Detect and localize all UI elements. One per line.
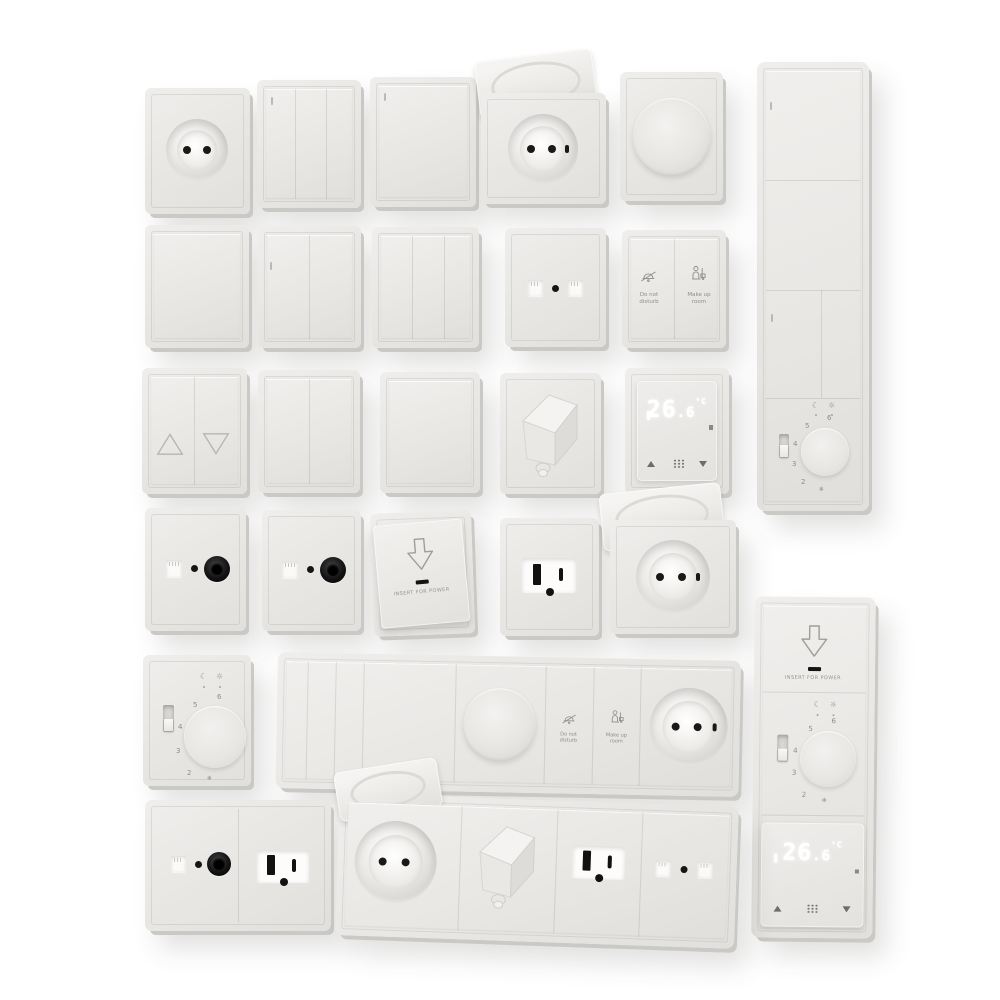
us-outlet <box>522 558 576 592</box>
card-slot <box>808 667 821 671</box>
temp-integer: 26 <box>782 839 812 865</box>
us-outlet <box>572 845 625 879</box>
center-hole <box>552 285 559 292</box>
keycard-slot-face: INSERT FOR POWER <box>373 518 471 628</box>
us-ground-hole <box>280 878 288 886</box>
temperature-display: 26.6°C <box>637 397 717 423</box>
insert-for-power-label: INSERT FOR POWER <box>393 587 449 598</box>
data-jack <box>528 280 543 296</box>
dial-number-4: 4 <box>793 440 797 448</box>
card-slot <box>416 579 429 584</box>
rocker-face <box>154 234 240 339</box>
euro-socket <box>166 119 228 181</box>
temp-decimal: .6 <box>812 848 831 864</box>
socket-pin-hole <box>678 573 686 581</box>
temp-unit: °C <box>695 397 707 406</box>
keycard-power-holder: INSERT FOR POWER <box>370 510 475 636</box>
switch-2-gang <box>258 226 361 348</box>
dial-number-5: 5 <box>193 701 197 709</box>
data-jack <box>655 860 671 877</box>
tv-coax-connector <box>207 852 231 876</box>
rocker-divider <box>444 236 445 339</box>
blank-switch <box>380 372 480 493</box>
media-jack <box>171 856 186 872</box>
moon-icon: ☾ <box>812 402 819 410</box>
temp-up-button <box>774 906 782 912</box>
mode-dots <box>817 714 819 716</box>
make-up-room-icon <box>608 708 626 726</box>
socket-pin-hole <box>183 146 191 154</box>
digital-thermostat-plate: 26.6°C <box>625 368 729 494</box>
indicator-mark <box>384 93 386 101</box>
digital-thermostat: 26.6°C <box>637 381 717 481</box>
rotary-dimmer <box>620 72 723 201</box>
temp-down-button <box>699 461 707 467</box>
module-seam <box>766 290 860 291</box>
temp-down-button <box>842 907 850 913</box>
temp-integer: 26 <box>647 397 677 423</box>
rocker-face <box>381 236 470 339</box>
label-line: Make up <box>678 292 720 299</box>
tv-coax-connector <box>320 557 346 583</box>
sun-icon: ☼ <box>830 701 837 709</box>
socket-pin-hole <box>527 145 535 153</box>
dial-number-4: 4 <box>793 747 798 755</box>
toggle-switch <box>779 434 789 458</box>
indicator-mark <box>770 102 772 110</box>
indicator-mark <box>771 314 773 322</box>
blinds-switch <box>142 368 247 494</box>
center-hole <box>195 861 202 868</box>
toggle-switch <box>777 735 788 762</box>
temp-decimal: .6 <box>677 405 696 421</box>
dimmer-knob <box>633 98 710 175</box>
euro-socket <box>636 540 710 614</box>
led-indicators <box>855 869 859 874</box>
us-slot-neutral <box>267 855 275 875</box>
tv-socket-plate <box>262 510 361 631</box>
socket-well <box>368 834 424 890</box>
rocker-face <box>379 86 467 198</box>
insert-arrow-icon <box>402 535 439 576</box>
do-not-disturb-icon <box>638 266 658 286</box>
thermostat-dial <box>184 706 246 768</box>
dial-number-3: 3 <box>176 747 180 755</box>
rocker-face <box>389 381 471 484</box>
thermostat-dial <box>801 428 849 476</box>
data-socket-plate <box>505 228 606 347</box>
thermostat-dial <box>800 731 857 788</box>
label-line: disturb <box>548 737 588 744</box>
tv-socket-plate <box>145 508 246 631</box>
socket-shutter-slot <box>713 723 717 731</box>
sun-icon: ☼ <box>216 673 223 681</box>
horizontal-socket-panel <box>335 793 739 949</box>
dial-number-6: 6 <box>831 717 836 725</box>
switch-1-gang <box>370 77 476 207</box>
rocker-divider <box>326 89 327 199</box>
socket-pin-hole <box>548 145 556 153</box>
make-up-room-label: Make up room <box>678 292 720 306</box>
mode-dots <box>815 414 817 416</box>
euro-socket <box>508 114 578 184</box>
socket-shutter-slot <box>696 573 700 581</box>
indicator-mark <box>270 262 272 270</box>
label-line: room <box>596 738 636 745</box>
rocker-face <box>266 89 352 199</box>
rocker-divider <box>821 290 822 398</box>
do-not-disturb-label: Do not disturb <box>548 731 588 744</box>
module-seam <box>766 180 860 181</box>
us-slot-live <box>292 859 296 872</box>
dial-number-5: 5 <box>805 422 809 430</box>
module-seam <box>238 809 239 922</box>
make-up-room-label: Make up room <box>596 732 636 745</box>
us-outlet-plate <box>500 518 599 636</box>
moon-icon: ☾ <box>200 673 207 681</box>
dial-number-3: 3 <box>792 460 796 468</box>
dial-number-4: 4 <box>178 723 182 731</box>
rocker-divider <box>309 235 310 339</box>
analog-thermostat: ☾ ☼ 6 5 4 3 2 ❄ <box>143 655 251 786</box>
temp-up-button <box>647 461 655 467</box>
frost-icon: ❄ <box>819 486 824 493</box>
frost-icon: ❄ <box>207 775 212 782</box>
menu-grid-icon <box>807 904 818 913</box>
toggle-switch <box>163 705 174 732</box>
rocker-divider <box>412 236 413 339</box>
switch-3-gang <box>372 227 479 348</box>
data-jack <box>568 280 583 296</box>
angled-outlet-body <box>470 816 543 913</box>
euro-socket-lid-plate <box>610 520 736 634</box>
rocker-divider <box>309 379 310 484</box>
tv-coax-connector <box>204 556 230 582</box>
switch-3-gang <box>257 80 361 208</box>
media-jack <box>282 561 298 578</box>
dial-number-6: 6 <box>827 414 831 422</box>
data-jack <box>697 862 713 879</box>
euro-socket-plate <box>145 88 250 214</box>
switch-2-gang <box>258 370 360 493</box>
rocker-divider <box>295 89 296 199</box>
blinds-up-icon <box>154 430 186 458</box>
us-slot-neutral <box>582 851 591 871</box>
make-up-room-icon <box>688 264 708 284</box>
blinds-down-icon <box>200 430 232 458</box>
insert-for-power-label: INSERT FOR POWER <box>785 675 841 682</box>
vertical-combo-panel: INSERT FOR POWER ☾ ☼ 6 5 4 3 2 ❄ 26.6°C <box>751 596 876 938</box>
us-slot-neutral <box>533 564 541 585</box>
hotel-service-switch: Do not disturb Make up room <box>622 230 726 348</box>
mode-dots <box>203 686 205 688</box>
indicator-mark <box>271 97 273 105</box>
euro-socket-lid-plate <box>481 93 606 204</box>
blank-switch <box>145 225 249 348</box>
do-not-disturb-label: Do not disturb <box>628 292 670 306</box>
center-hole <box>307 566 314 573</box>
us-slot-live <box>608 855 612 868</box>
insert-arrow-icon <box>797 623 831 661</box>
module-seam <box>766 398 860 399</box>
dial-number-2: 2 <box>187 769 191 777</box>
dial-number-2: 2 <box>801 478 805 486</box>
temperature-display: 26.6°C <box>761 839 864 866</box>
double-plate-tv-us <box>145 800 331 931</box>
render-canvas: ☾ ☼ 6 5 4 3 2 ❄ Do not di <box>0 0 1000 1000</box>
media-jack <box>166 560 182 577</box>
label-line: Do not <box>628 292 670 299</box>
digital-thermostat: 26.6°C <box>760 822 864 927</box>
moon-icon: ☾ <box>814 701 821 709</box>
socket-pin-hole <box>203 146 211 154</box>
angled-outlet-body <box>515 385 585 480</box>
sun-icon: ☼ <box>828 402 835 410</box>
socket-shutter-slot <box>565 145 569 153</box>
vertical-multi-panel: ☾ ☼ 6 5 4 3 2 ❄ <box>757 62 869 511</box>
label-line: room <box>678 299 720 306</box>
dial-number-2: 2 <box>802 791 807 799</box>
angled-cable-outlet <box>500 373 601 494</box>
temp-unit: °C <box>831 840 843 849</box>
menu-grid-icon <box>673 459 684 468</box>
dial-number-6: 6 <box>217 693 221 701</box>
center-hole <box>191 565 198 572</box>
dial-number-3: 3 <box>792 769 797 777</box>
socket-well <box>662 701 714 753</box>
led-indicators <box>709 425 713 430</box>
socket-pin-hole <box>656 573 664 581</box>
frost-icon: ❄ <box>822 797 827 804</box>
rocker-divider <box>194 377 195 485</box>
do-not-disturb-icon <box>560 709 578 727</box>
us-ground-hole <box>546 588 554 596</box>
label-line: disturb <box>628 299 670 306</box>
us-slot-live <box>559 568 563 581</box>
us-outlet <box>257 850 309 882</box>
rocker-divider <box>674 239 675 339</box>
dial-number-5: 5 <box>808 725 813 733</box>
